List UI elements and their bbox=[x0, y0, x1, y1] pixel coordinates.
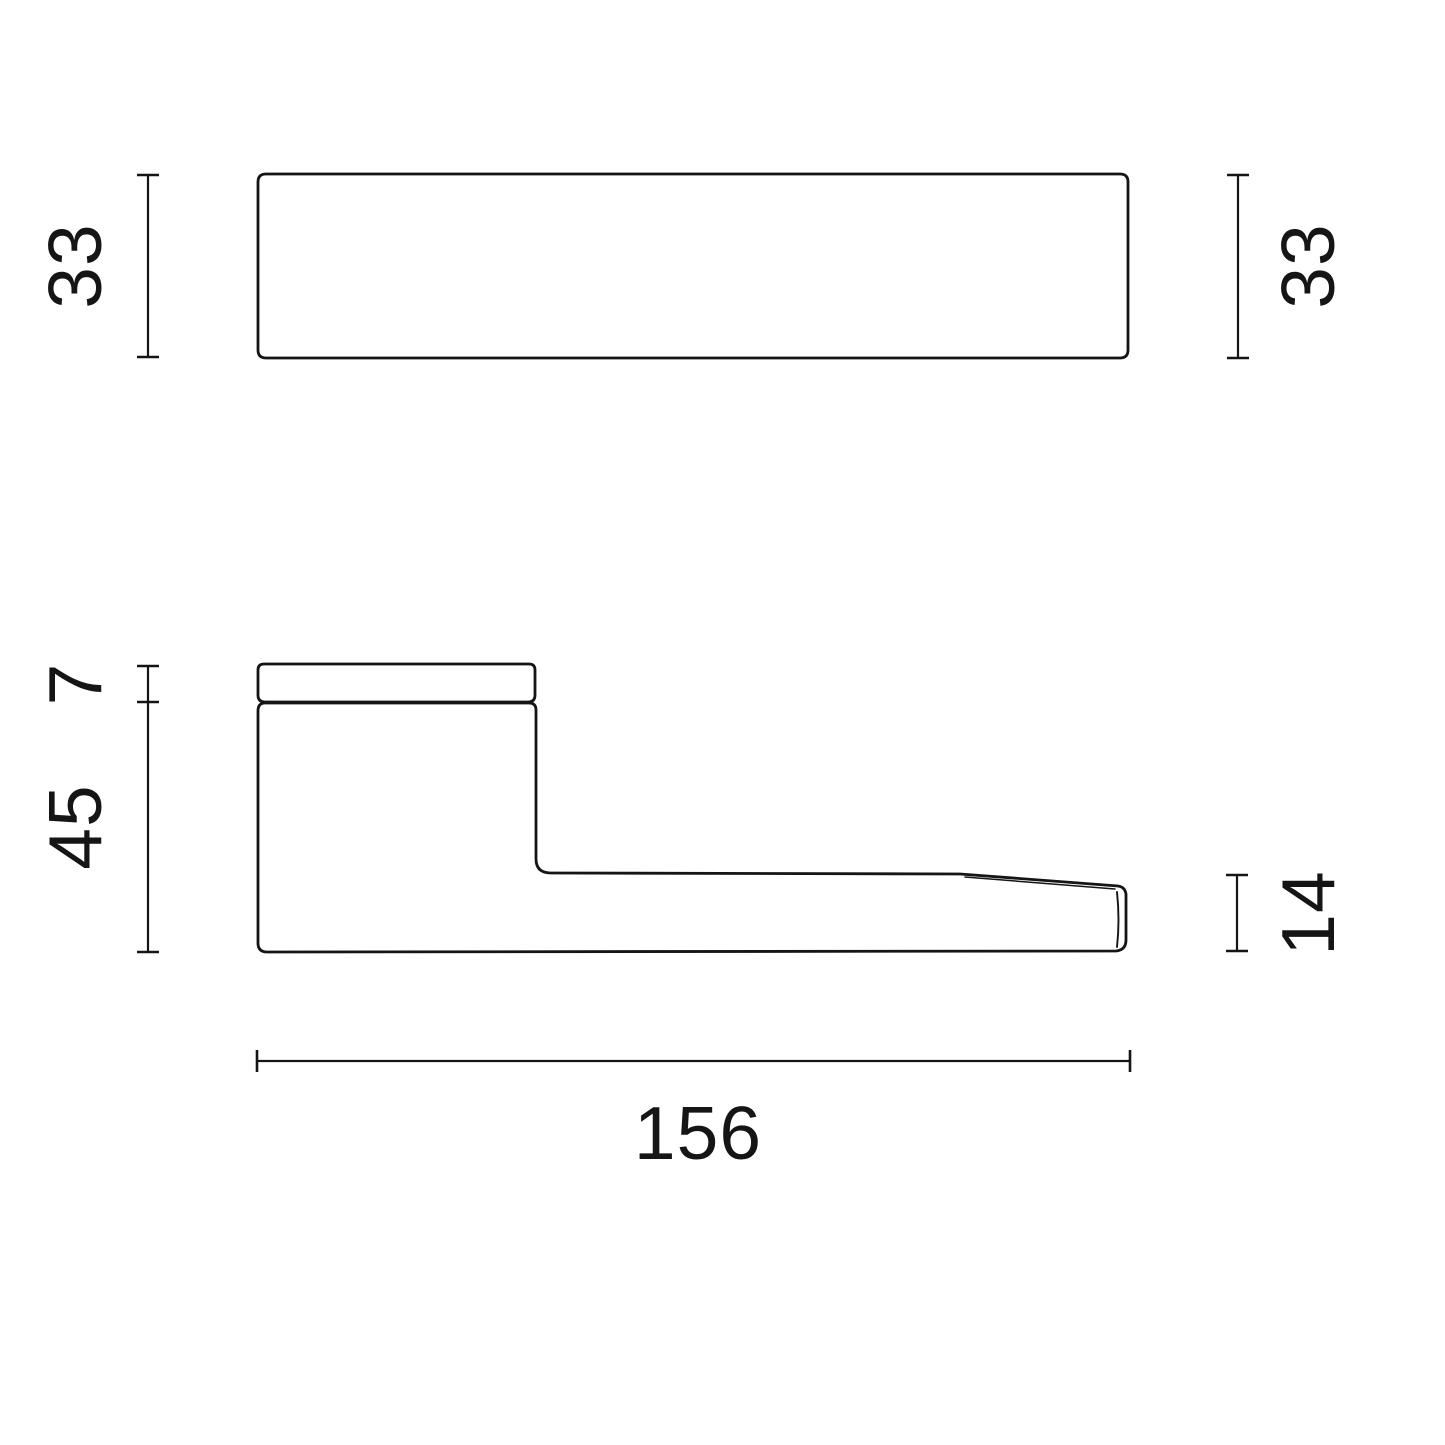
drawing-canvas: 33 33 7 45 bbox=[0, 0, 1445, 1445]
side-view-body-outline bbox=[258, 703, 1126, 952]
dim-top-height-left: 33 bbox=[33, 175, 159, 357]
side-view-cap-outline bbox=[258, 664, 535, 702]
dim-overall-length: 156 bbox=[257, 1050, 1130, 1175]
side-view bbox=[258, 664, 1126, 952]
dim-label-156: 156 bbox=[634, 1091, 762, 1175]
dim-label-14: 14 bbox=[1266, 870, 1350, 955]
top-view bbox=[258, 174, 1128, 358]
dim-side-left: 7 45 bbox=[33, 663, 159, 952]
dim-label-33-right: 33 bbox=[1266, 223, 1350, 308]
technical-drawing: 33 33 7 45 bbox=[0, 0, 1445, 1445]
lever-tip-end-edge bbox=[1117, 892, 1119, 947]
dim-top-height-right: 33 bbox=[1227, 175, 1350, 358]
dim-label-7: 7 bbox=[33, 663, 117, 706]
dim-label-33-left: 33 bbox=[33, 223, 117, 308]
dim-label-45: 45 bbox=[33, 784, 117, 869]
top-view-outline bbox=[258, 174, 1128, 358]
dim-lever-tip-height: 14 bbox=[1226, 870, 1350, 955]
